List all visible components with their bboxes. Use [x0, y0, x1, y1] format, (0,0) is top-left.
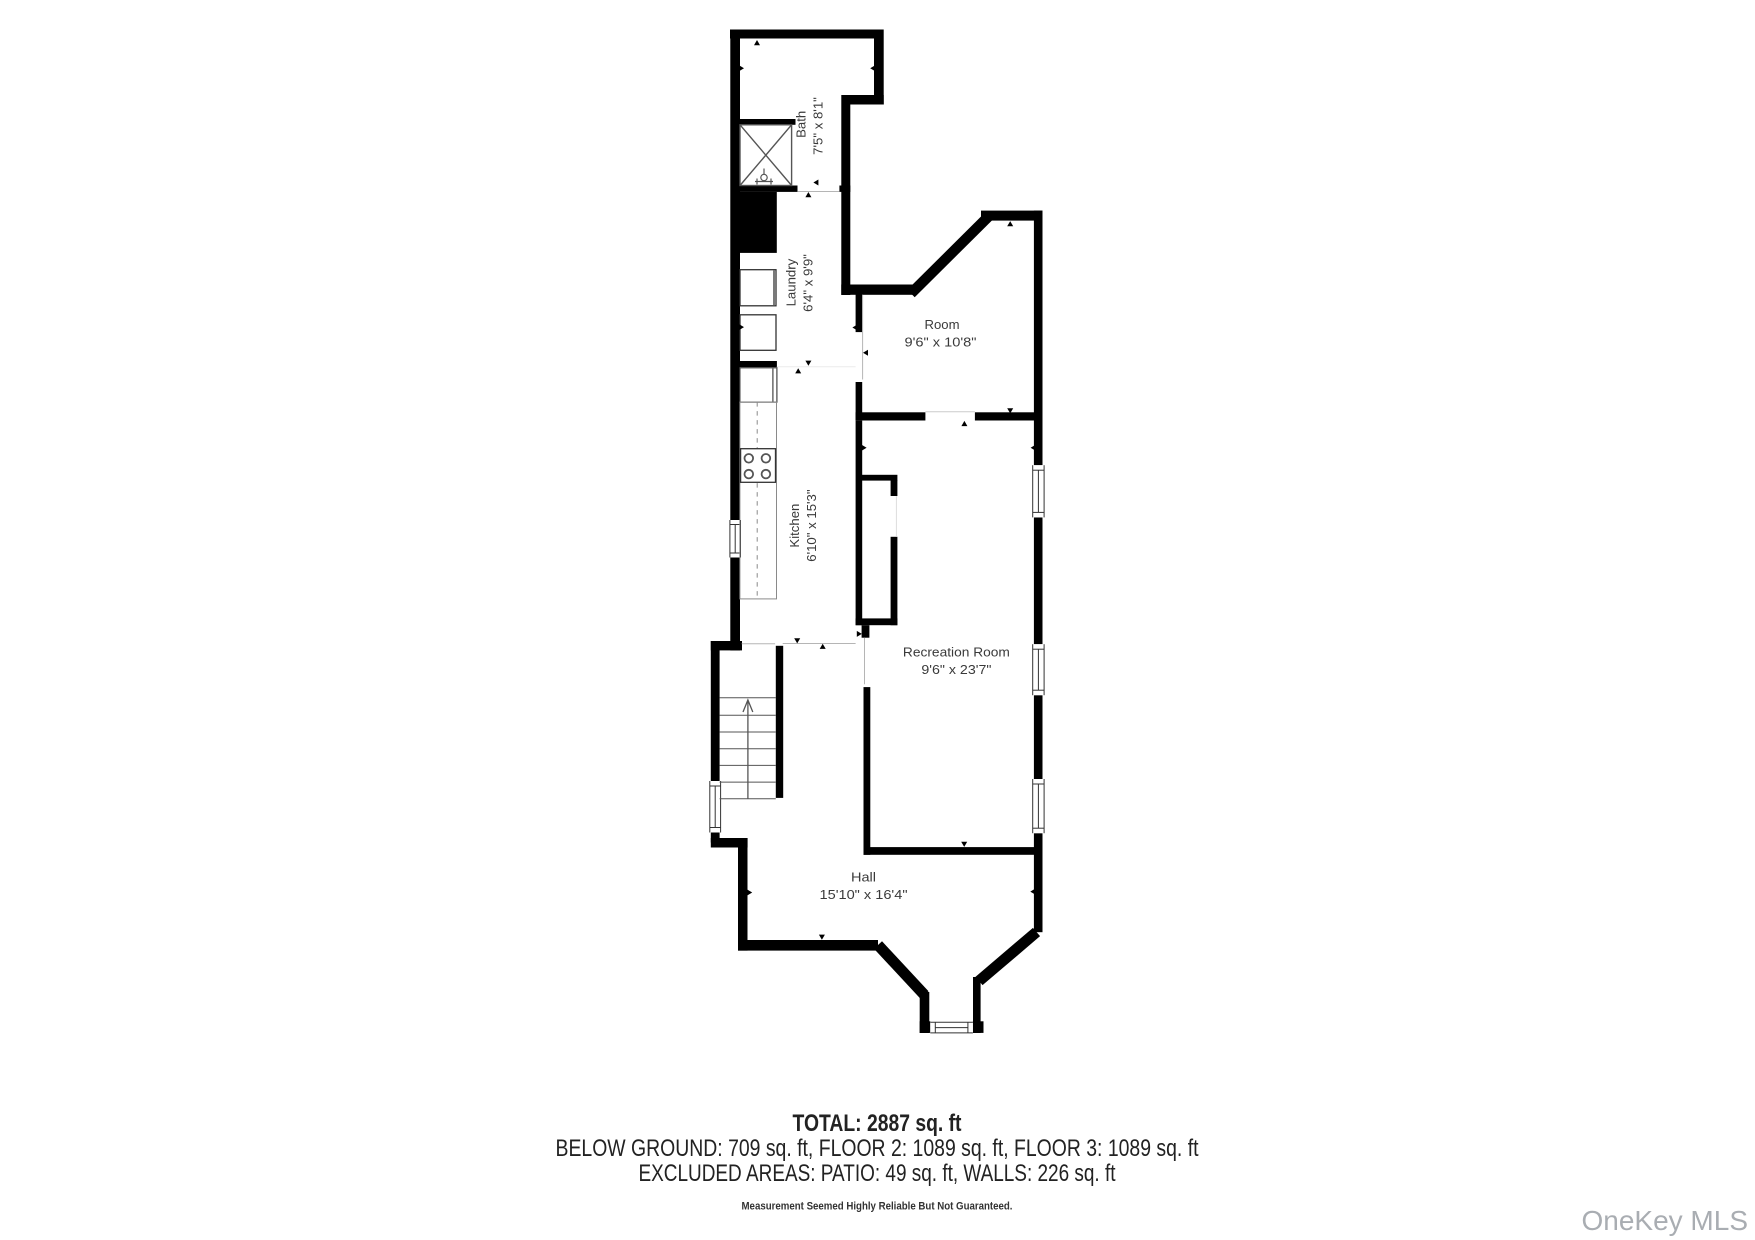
- svg-text:Hall: Hall: [851, 870, 876, 885]
- svg-text:Bath: Bath: [794, 111, 809, 138]
- svg-text:TOTAL: 2887 sq. ft: TOTAL: 2887 sq. ft: [793, 1110, 962, 1137]
- svg-text:9'6" x 10'8": 9'6" x 10'8": [905, 335, 977, 350]
- svg-text:BELOW GROUND: 709 sq. ft, FLOO: BELOW GROUND: 709 sq. ft, FLOOR 2: 1089 …: [556, 1135, 1199, 1162]
- svg-text:Recreation Room: Recreation Room: [903, 645, 1010, 660]
- svg-text:15'10" x 16'4": 15'10" x 16'4": [820, 887, 908, 902]
- svg-text:7'5" x 8'1": 7'5" x 8'1": [811, 97, 826, 155]
- svg-text:Kitchen: Kitchen: [787, 504, 802, 548]
- svg-text:EXCLUDED AREAS: PATIO: 49 sq.: EXCLUDED AREAS: PATIO: 49 sq. ft, WALLS:…: [639, 1160, 1116, 1187]
- svg-text:Measurement Seemed Highly Reli: Measurement Seemed Highly Reliable But N…: [742, 1201, 1013, 1213]
- svg-text:6'10" x 15'3": 6'10" x 15'3": [804, 489, 819, 562]
- svg-text:9'6" x 23'7": 9'6" x 23'7": [921, 662, 991, 677]
- svg-text:Laundry: Laundry: [784, 258, 799, 306]
- svg-text:6'4" x 9'9": 6'4" x 9'9": [801, 254, 816, 312]
- svg-text:OneKey MLS: OneKey MLS: [1581, 1205, 1748, 1236]
- svg-text:Room: Room: [925, 317, 960, 332]
